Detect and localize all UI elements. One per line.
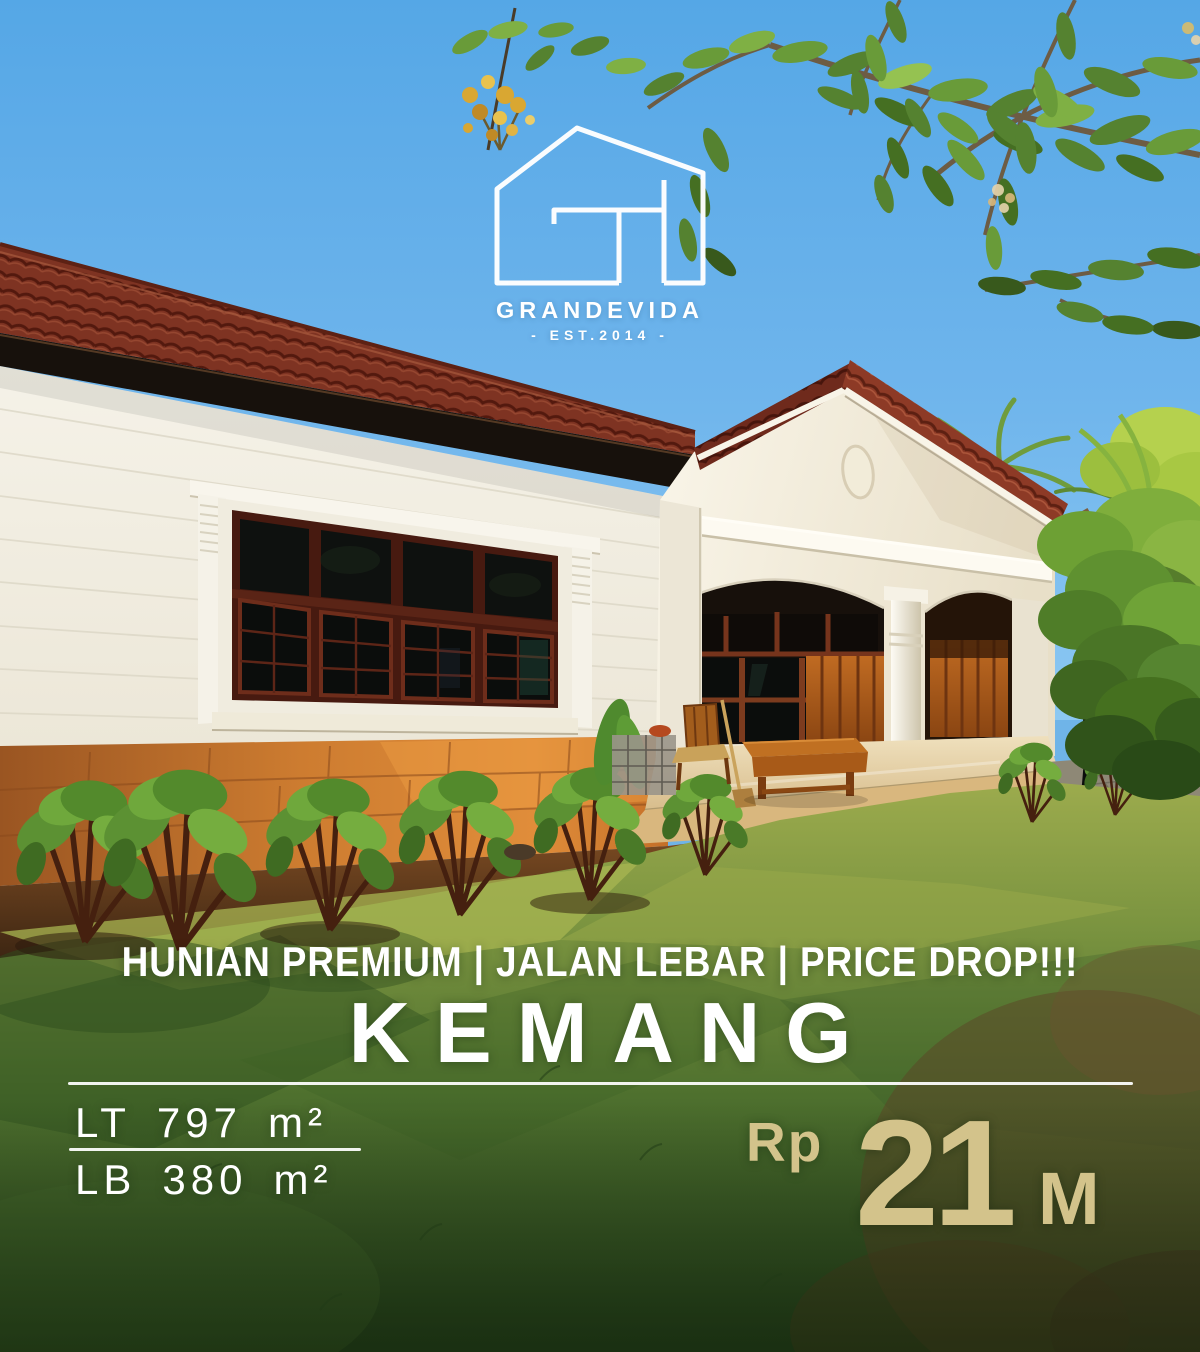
- divider-line-short: [69, 1148, 361, 1151]
- divider-line-long: [68, 1082, 1133, 1085]
- building-area-unit: m²: [273, 1156, 332, 1203]
- price-amount: 21: [855, 1097, 1011, 1248]
- land-area-label: LT: [75, 1099, 131, 1146]
- listing-tagline: HUNIAN PREMIUM | JALAN LEBAR | PRICE DRO…: [72, 938, 1128, 986]
- wire-cart: [612, 735, 676, 795]
- land-area-row: LT797m²: [75, 1099, 327, 1147]
- land-area-unit: m²: [268, 1099, 327, 1146]
- brand-established: - EST.2014 -: [0, 327, 1200, 343]
- location-title: KEMANG: [0, 985, 1200, 1083]
- property-listing-poster: GRANDEVIDA - EST.2014 - HUNIAN PREMIUM |…: [0, 0, 1200, 1352]
- price-currency: Rp: [746, 1115, 823, 1170]
- porch-opening-right: [925, 591, 1012, 740]
- land-area-value: 797: [157, 1099, 242, 1146]
- flower-pot: [649, 725, 671, 737]
- price-unit: M: [1038, 1162, 1100, 1236]
- building-area-value: 380: [162, 1156, 247, 1203]
- coffee-table: [742, 738, 868, 808]
- building-area-row: LB380m²: [75, 1156, 332, 1204]
- building-area-label: LB: [75, 1156, 136, 1203]
- brand-name: GRANDEVIDA: [0, 297, 1200, 324]
- house-logo-icon: [480, 118, 720, 294]
